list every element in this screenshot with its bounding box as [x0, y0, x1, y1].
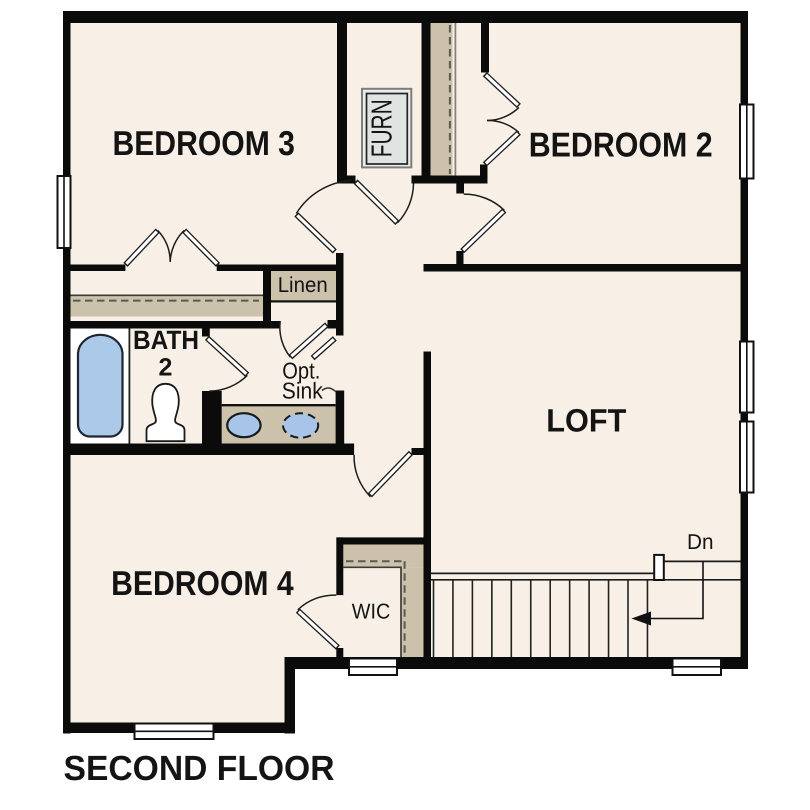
svg-text:2: 2	[159, 354, 173, 382]
svg-text:Linen: Linen	[278, 273, 328, 297]
svg-text:FURN: FURN	[367, 99, 399, 157]
svg-text:Dn: Dn	[687, 530, 714, 554]
svg-text:SECOND FLOOR: SECOND FLOOR	[64, 749, 335, 788]
svg-text:WIC: WIC	[352, 600, 391, 624]
svg-text:Sink: Sink	[282, 378, 323, 404]
svg-text:LOFT: LOFT	[546, 402, 626, 438]
svg-text:BEDROOM 4: BEDROOM 4	[111, 565, 294, 603]
svg-text:BEDROOM 2: BEDROOM 2	[529, 126, 713, 164]
svg-text:BEDROOM 3: BEDROOM 3	[112, 125, 295, 163]
svg-text:BATH: BATH	[133, 325, 199, 355]
